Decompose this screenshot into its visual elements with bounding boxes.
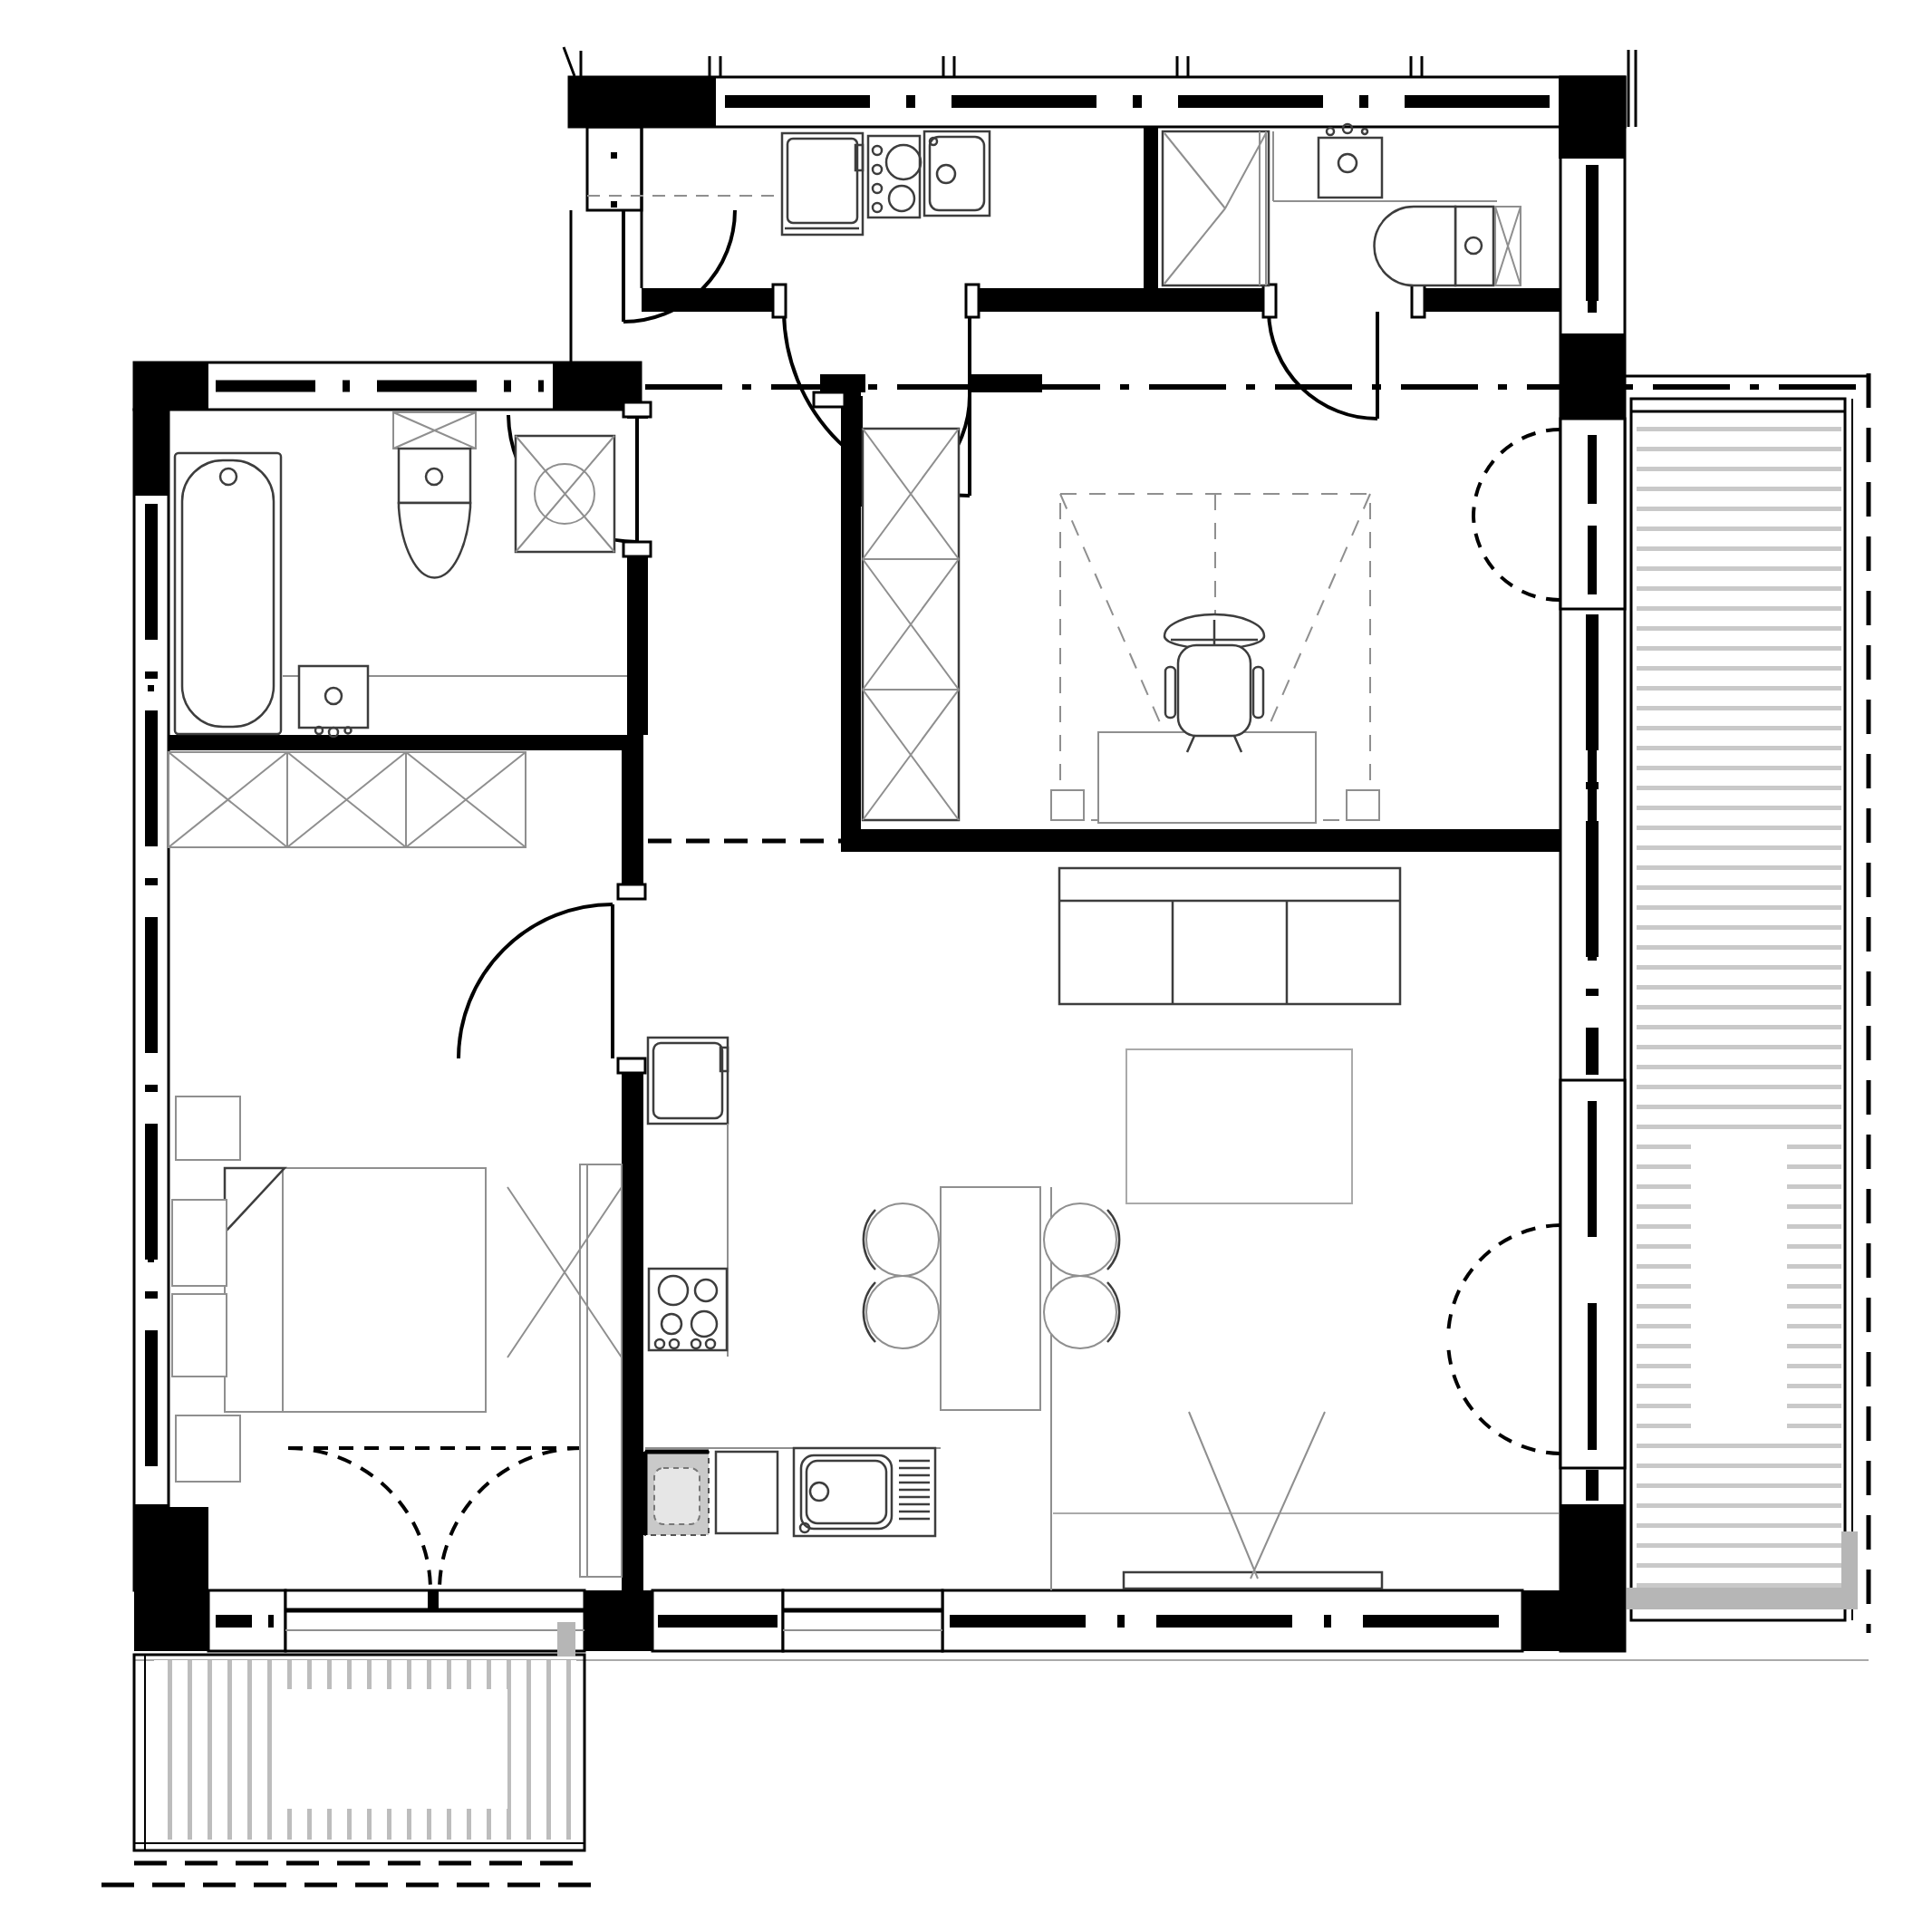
bathtub-icon	[175, 453, 281, 734]
kitchen-sink-icon	[794, 1448, 935, 1536]
deck-gap	[1691, 1133, 1787, 1441]
utility-kitchenette	[782, 131, 990, 235]
bedroom-study	[863, 429, 1379, 823]
corner-block	[1560, 77, 1625, 159]
bath-top-bottom-wall-left	[1158, 288, 1276, 312]
windows	[285, 181, 1625, 1651]
bedroom-left	[169, 752, 622, 1577]
bathroom-top-door	[1263, 285, 1425, 419]
chair-icon	[1044, 1276, 1119, 1348]
dishwasher-icon	[645, 1452, 709, 1535]
glazing-mark	[1588, 698, 1597, 961]
door-leaf-mark	[1588, 526, 1597, 594]
door-jamb	[966, 285, 979, 317]
chair-icon	[1044, 1203, 1119, 1276]
pillow	[172, 1200, 227, 1286]
door-leaf-mark	[1588, 1303, 1597, 1450]
pillow	[172, 1294, 227, 1377]
kitchen-bedroom-wall-top	[622, 750, 643, 897]
bathroom-left	[175, 412, 627, 737]
door-jamb	[623, 542, 651, 556]
corner-block	[134, 1590, 208, 1651]
door-jamb	[623, 402, 651, 417]
tall-cabinet-fridge-icon	[648, 1038, 728, 1124]
coffee-table-icon	[1126, 1049, 1352, 1203]
door-jamb	[773, 285, 786, 317]
light-band-corner	[1841, 1531, 1858, 1609]
bedroom-study-left-wall	[841, 392, 861, 852]
toilet-cistern-icon	[393, 412, 476, 577]
entry-pier	[587, 127, 642, 210]
desk-icon	[1098, 732, 1316, 823]
door-mullion	[428, 1590, 439, 1612]
bedroom-left-door	[459, 884, 645, 1073]
corner-block	[134, 362, 208, 410]
door-jamb	[618, 1058, 645, 1073]
utility-bottom-wall-left	[642, 288, 784, 312]
column-top-left	[569, 77, 716, 127]
double-bed-icon	[172, 1168, 486, 1412]
door-jamb	[1412, 285, 1425, 317]
utility-sink-icon	[924, 131, 990, 216]
corner-block	[169, 1507, 208, 1590]
bed-foot	[1051, 790, 1084, 820]
kitchen-dining	[645, 1038, 1119, 1590]
toilet-icon	[1375, 207, 1494, 285]
cooktop-icon	[649, 1269, 727, 1350]
washbasin-icon	[1273, 124, 1497, 201]
door-leaf-mark	[1588, 1101, 1597, 1237]
column-right	[1560, 333, 1625, 419]
corner-block	[1522, 1590, 1625, 1651]
service-duct-icon	[1495, 207, 1521, 285]
door-jamb	[814, 392, 845, 407]
kitchen-window	[783, 1590, 942, 1651]
corner-block	[134, 1504, 169, 1590]
bedroom-study-bottom-wall	[841, 829, 1560, 852]
corner-block	[134, 410, 169, 496]
deck-gap	[272, 1689, 507, 1809]
balcony-left	[101, 1622, 605, 1885]
light-band-connector	[557, 1622, 575, 1657]
shower-tray-icon	[1163, 131, 1269, 285]
utility-bottom-wall-right	[970, 288, 1158, 312]
balcony-right	[1625, 373, 1869, 1633]
washbasin-counter-icon	[283, 666, 627, 737]
wardrobe-top-icon	[169, 752, 526, 847]
nightstand-icon	[176, 1415, 240, 1482]
bed-foot	[1347, 790, 1379, 820]
nightstand-icon	[176, 1096, 240, 1160]
bath-top-bottom-wall-right	[1414, 288, 1560, 312]
kitchen-bedroom-wall	[622, 1058, 643, 1590]
light-band-bottom	[1627, 1588, 1858, 1609]
washing-machine-icon	[782, 133, 863, 235]
tv-icon	[1124, 1412, 1382, 1589]
base-cabinet-icon	[716, 1452, 778, 1533]
island-table-icon	[941, 1187, 1040, 1410]
wall-segment	[584, 1590, 652, 1651]
door-jamb	[618, 884, 645, 899]
floor-plan-canvas	[0, 0, 1932, 1932]
utility-bath-divider	[1144, 127, 1158, 312]
sofa-icon	[1059, 868, 1400, 1004]
shower-icon	[516, 436, 614, 552]
dimension-ticks	[564, 47, 1636, 127]
bath-left-bottom-wall	[169, 735, 643, 750]
chair-icon	[864, 1203, 939, 1276]
exterior-walls	[134, 77, 1625, 1651]
wardrobe-study-icon	[863, 429, 959, 820]
bathroom-top	[1163, 124, 1521, 285]
hob-2-burner-icon	[868, 136, 921, 217]
tall-wardrobe-icon	[507, 1164, 622, 1577]
door-jamb	[1263, 285, 1276, 317]
door-leaf-mark	[1588, 435, 1597, 504]
glazing-mark	[1588, 181, 1597, 313]
chair-icon	[864, 1276, 939, 1348]
bath-left-right-wall	[627, 542, 648, 735]
